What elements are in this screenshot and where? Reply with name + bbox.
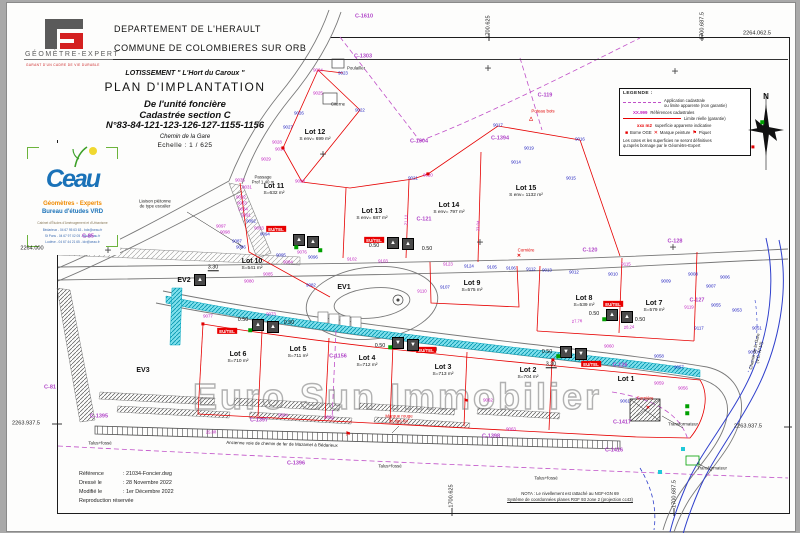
survey-point: 9117: [694, 325, 703, 330]
survey-point: 9092: [246, 218, 256, 223]
utility-box: ▼: [407, 339, 419, 351]
survey-point: 9099: [295, 178, 305, 183]
survey-point: 9033: [237, 200, 247, 205]
paint-mark: ✕: [517, 253, 521, 259]
lot-label: Lot 3 S=713 m²: [428, 364, 459, 378]
plan-sheet: GÉOMÈTRE-EXPERT GARANT D'UN CADRE DE VIE…: [0, 0, 800, 533]
eu-tel-badge: EU/TEL: [581, 361, 601, 367]
survey-point: 9029: [261, 156, 271, 161]
green-marker: [318, 248, 322, 252]
survey-point: 9053: [732, 307, 742, 312]
red-annotation: Cornière: [637, 395, 654, 400]
survey-point: 9057: [674, 364, 684, 369]
lot-label: Lot 6 S=710 m²: [223, 351, 254, 365]
map-labels-layer: Lot 12 S env= 699 m²Lot 11 S=632 m²Lot 1…: [0, 0, 800, 533]
map-note: Passage Prof 1.40 m: [252, 175, 275, 186]
map-note: Citerne: [331, 101, 345, 106]
borne-marker: [551, 358, 554, 361]
utility-box: ▲: [252, 319, 264, 331]
dimension-label: 0.50: [369, 243, 380, 249]
grid-cross: +: [104, 243, 111, 257]
lot-label: Lot 8 S=539 m²: [569, 295, 600, 309]
cadastral-ref: C-126: [613, 363, 628, 370]
red-annotation: Marque rouge et tige fer: [385, 414, 412, 425]
paint-mark: △: [529, 116, 533, 122]
survey-point: 9016: [575, 136, 585, 141]
survey-point: 9103: [378, 258, 388, 263]
dimension-label: 0.50: [542, 349, 553, 355]
dimension-label: 0.50: [284, 320, 295, 326]
map-note: Talus+fossé: [378, 463, 401, 468]
survey-point: 9009: [661, 278, 671, 283]
survey-point: 9058: [654, 353, 664, 358]
grid-coordinate: 1700.687.5: [700, 12, 707, 40]
cadastral-ref: C-1395: [90, 414, 108, 421]
dimension-label: 3.30: [208, 264, 219, 271]
survey-point: 9112: [526, 266, 535, 271]
dimension-label: 21.12: [403, 215, 408, 226]
cadastral-ref: C-1394: [491, 136, 509, 143]
dimension-label: 0.50: [375, 343, 386, 349]
cadastral-ref: C-1417: [613, 420, 631, 427]
greenspace-label: EV1: [337, 284, 350, 292]
grid-cross: +: [476, 235, 483, 249]
utility-box: ▼: [392, 337, 404, 349]
survey-point: 9025: [313, 90, 323, 95]
dimension-label: 27.76: [572, 318, 583, 324]
lot-label: Lot 4 S=712 m²: [352, 355, 383, 369]
survey-point: 9026: [294, 110, 304, 115]
map-note: Talus+fossé: [534, 475, 557, 480]
utility-box: ▲: [621, 311, 633, 323]
survey-point: 9034: [238, 206, 248, 211]
survey-point: 9080: [244, 278, 254, 283]
survey-point: 9023: [338, 70, 348, 75]
survey-point: 9084: [283, 259, 293, 264]
survey-point: 9102: [347, 256, 357, 261]
survey-point: 9064: [278, 412, 288, 417]
green-marker: [685, 404, 689, 408]
utility-box: ▲: [606, 309, 618, 321]
survey-point: 9115: [621, 261, 630, 266]
cadastral-ref: C-1397: [250, 418, 268, 425]
survey-point: 9024: [313, 67, 323, 72]
cadastral-ref: C-85: [82, 234, 94, 241]
survey-point: 9082: [306, 282, 316, 287]
survey-point: 9059: [654, 380, 664, 385]
survey-point: 9055: [711, 302, 721, 307]
cadastral-ref: C-120: [583, 248, 598, 255]
greenspace-label: EV2: [177, 277, 190, 285]
survey-point: 9106: [506, 265, 516, 270]
survey-point: 9094: [260, 231, 270, 236]
cadastral-ref: C-1416: [605, 448, 623, 455]
lot-label: Lot 7 S=579 m²: [639, 300, 670, 314]
survey-point: 9010: [608, 271, 618, 276]
map-note: Transformateur: [697, 465, 727, 470]
lot-label: Lot 15 S env= 1132 m²: [501, 185, 551, 199]
dimension-label: 23.04: [475, 221, 480, 232]
survey-point: 9077: [203, 313, 213, 318]
eu-tel-badge: EU/TEL: [603, 301, 623, 307]
cadastral-ref: C-1396: [287, 461, 305, 468]
survey-point: 9093: [254, 225, 264, 230]
map-note: Ancienne voie de chemin de fer de Mazame…: [226, 440, 338, 448]
survey-point: 9091: [241, 212, 251, 217]
grid-coordinate: 2264.000: [20, 246, 43, 253]
survey-point: 9017: [493, 122, 503, 127]
survey-point: 9007: [706, 283, 716, 288]
dimension-label: 0.50: [238, 317, 249, 323]
lot-label: Lot 9 S=575 m²: [457, 280, 488, 294]
survey-point: 9105: [487, 264, 497, 269]
survey-point: 9013: [542, 267, 552, 272]
survey-point: 9085: [263, 271, 273, 276]
cyan-marker: [681, 447, 685, 451]
survey-point: 9031: [242, 184, 252, 189]
survey-point: 9086: [236, 244, 246, 249]
survey-point: 9022: [355, 107, 365, 112]
grid-cross: +: [671, 64, 678, 78]
dimension-label: 0.50: [589, 311, 600, 317]
lot-label: Lot 2 S=704 m²: [513, 367, 544, 381]
borne-marker: [751, 145, 754, 148]
map-note: Transformateur: [668, 421, 698, 426]
cadastral-ref: C-1398: [482, 434, 500, 441]
survey-point: 9028: [272, 139, 282, 144]
survey-point: 9087: [232, 238, 242, 243]
survey-point: 9006: [720, 274, 730, 279]
survey-point: 9019: [524, 145, 534, 150]
utility-box: ▲: [402, 238, 414, 250]
survey-point: 9012: [569, 269, 579, 274]
greenspace-label: EV3: [136, 367, 149, 375]
lot-label: Lot 5 S=711 m²: [283, 346, 314, 360]
green-marker: [294, 245, 298, 249]
cadastral-ref: C-127: [690, 298, 705, 305]
cadastral-ref: C-1610: [355, 14, 373, 21]
eu-tel-badge: EU/TEL: [266, 226, 286, 232]
utility-box: ▲: [307, 236, 319, 248]
eu-tel-badge: EU/TEL: [364, 237, 384, 243]
survey-point: 9076: [297, 249, 307, 254]
survey-point: 9027: [283, 124, 293, 129]
survey-point: 9123: [443, 261, 453, 266]
utility-box: ▲: [194, 274, 206, 286]
eu-tel-badge: EU/TEL: [416, 347, 436, 353]
survey-point: 9008: [688, 271, 698, 276]
map-note: Poulailler: [347, 65, 365, 70]
grid-cross: +: [669, 240, 676, 254]
stake-marker: ⚑: [463, 398, 469, 406]
survey-point: 9021: [408, 175, 418, 180]
green-marker: [602, 317, 606, 321]
cadastral-ref: C-1304: [410, 139, 428, 146]
survey-point: 9119: [684, 304, 693, 309]
grid-coordinate: 1700.687.5: [672, 480, 679, 508]
eu-tel-badge: EU/TEL: [217, 328, 237, 334]
utility-box: ▲: [267, 321, 279, 333]
cadastral-ref: C-119: [538, 93, 553, 100]
cadastral-ref: C-1156: [329, 354, 347, 361]
lot-label: Lot 1: [618, 376, 635, 384]
survey-point: 9066: [324, 414, 334, 419]
green-marker: [248, 328, 252, 332]
grid-coordinate: 2263.937.5: [12, 421, 40, 428]
map-note: Liaison piétonne de type escalier: [139, 199, 171, 210]
red-annotation: Cornière: [518, 247, 535, 252]
cadastral-ref: C-121: [417, 217, 432, 224]
survey-point: 9014: [511, 159, 521, 164]
lot-label: Lot 10 S=541 m²: [237, 258, 268, 272]
survey-point: 9097: [216, 223, 226, 228]
cyan-marker: [658, 470, 662, 474]
survey-point: 9035: [235, 177, 245, 182]
lot-label: Lot 12 S env= 699 m²: [292, 129, 339, 143]
survey-point: 9073: [266, 311, 276, 316]
survey-point: 9032: [236, 194, 246, 199]
utility-box: ▲: [293, 234, 305, 246]
grid-coordinate: 1700.625: [486, 15, 493, 38]
survey-point: 9015: [566, 175, 576, 180]
green-marker: [760, 120, 764, 124]
survey-point: 9107: [440, 284, 450, 289]
borne-marker: [281, 146, 284, 149]
dimension-label: 0.50: [635, 317, 646, 323]
survey-point: 9061: [620, 398, 630, 403]
survey-point: 9124: [464, 263, 474, 268]
dimension-label: 3.30: [546, 361, 557, 368]
dimension-label: 0.50: [422, 246, 433, 252]
green-marker: [556, 354, 560, 358]
borne-marker: [426, 172, 429, 175]
stake-marker: ⚑: [345, 431, 351, 439]
utility-box: ▼: [575, 348, 587, 360]
grid-coordinate: 2264.062.5: [743, 31, 771, 38]
red-annotation: Poteau bois: [531, 108, 554, 113]
grid-cross: +: [319, 147, 326, 161]
survey-point: 9063: [506, 426, 516, 431]
cadastral-ref: C-1303: [354, 54, 372, 61]
borne-marker: [201, 322, 204, 325]
grid-cross: +: [484, 61, 491, 75]
lot-label: Lot 13 S env= 687 m²: [349, 208, 396, 222]
green-marker: [388, 345, 392, 349]
grid-coordinate: 2263.937.5: [734, 424, 762, 431]
map-note: Talus+fossé: [88, 440, 111, 445]
survey-point: 9096: [308, 254, 318, 259]
dimension-label: 28.24: [624, 324, 635, 330]
survey-point: 9095: [276, 252, 286, 257]
utility-box: ▼: [560, 346, 572, 358]
dimension-label: 25.88: [206, 429, 217, 434]
survey-point: 9110: [417, 288, 426, 293]
green-marker: [685, 411, 689, 415]
grid-coordinate: 1700.625: [449, 484, 456, 507]
survey-point: 9062: [483, 397, 493, 402]
utility-box: ▲: [387, 237, 399, 249]
survey-point: 9056: [678, 385, 688, 390]
cadastral-ref: C-81: [44, 385, 56, 392]
paint-mark: ✕: [646, 405, 650, 411]
survey-point: 9060: [604, 343, 614, 348]
survey-point: 9098: [220, 229, 230, 234]
lot-label: Lot 14 S env= 797 m²: [426, 202, 473, 216]
